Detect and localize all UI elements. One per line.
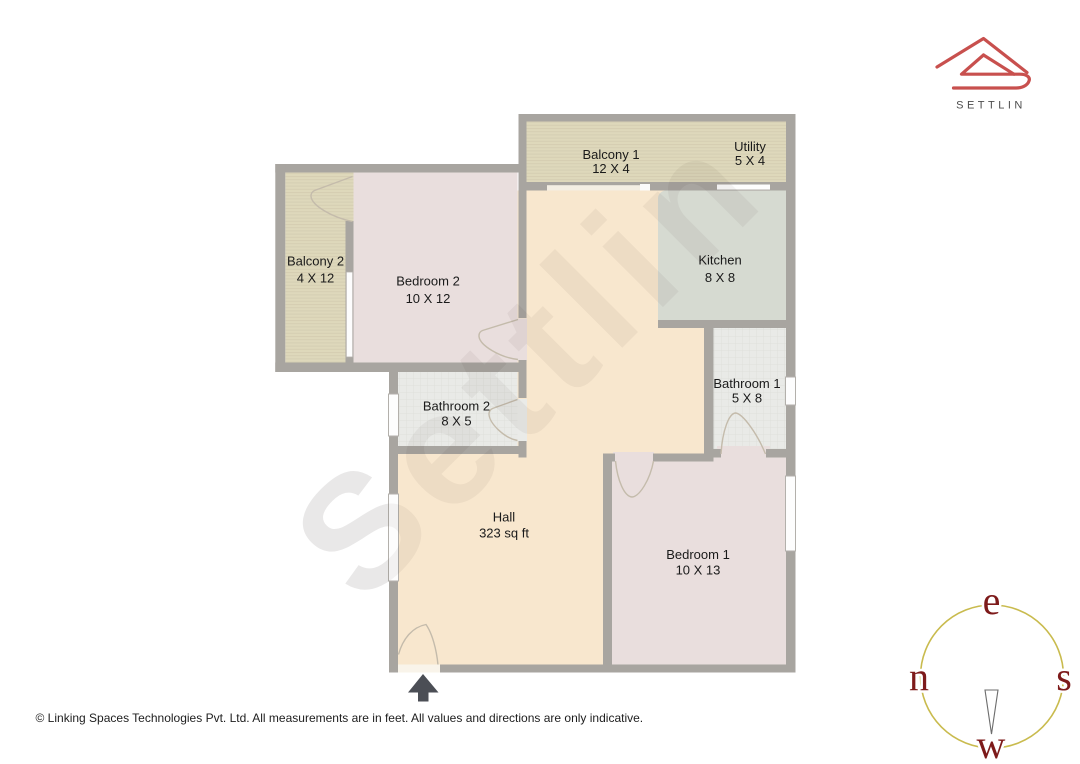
svg-text:10 X 12: 10 X 12 (406, 291, 451, 306)
svg-text:s: s (1056, 654, 1072, 699)
svg-text:Bedroom 1: Bedroom 1 (666, 547, 730, 562)
svg-text:4 X 12: 4 X 12 (297, 271, 335, 286)
svg-text:© Linking Spaces Technologies: © Linking Spaces Technologies Pvt. Ltd. … (36, 711, 644, 725)
svg-text:Bathroom 1: Bathroom 1 (713, 376, 780, 391)
svg-text:SETTLIN: SETTLIN (956, 100, 1026, 112)
svg-text:Utility: Utility (734, 139, 766, 154)
svg-text:10 X 13: 10 X 13 (676, 562, 721, 577)
svg-text:Balcony 2: Balcony 2 (287, 254, 344, 269)
svg-text:5 X 8: 5 X 8 (732, 391, 762, 406)
svg-text:e: e (983, 578, 1001, 623)
svg-text:Bedroom 2: Bedroom 2 (396, 274, 460, 289)
svg-text:n: n (909, 654, 929, 699)
svg-text:w: w (977, 722, 1006, 764)
